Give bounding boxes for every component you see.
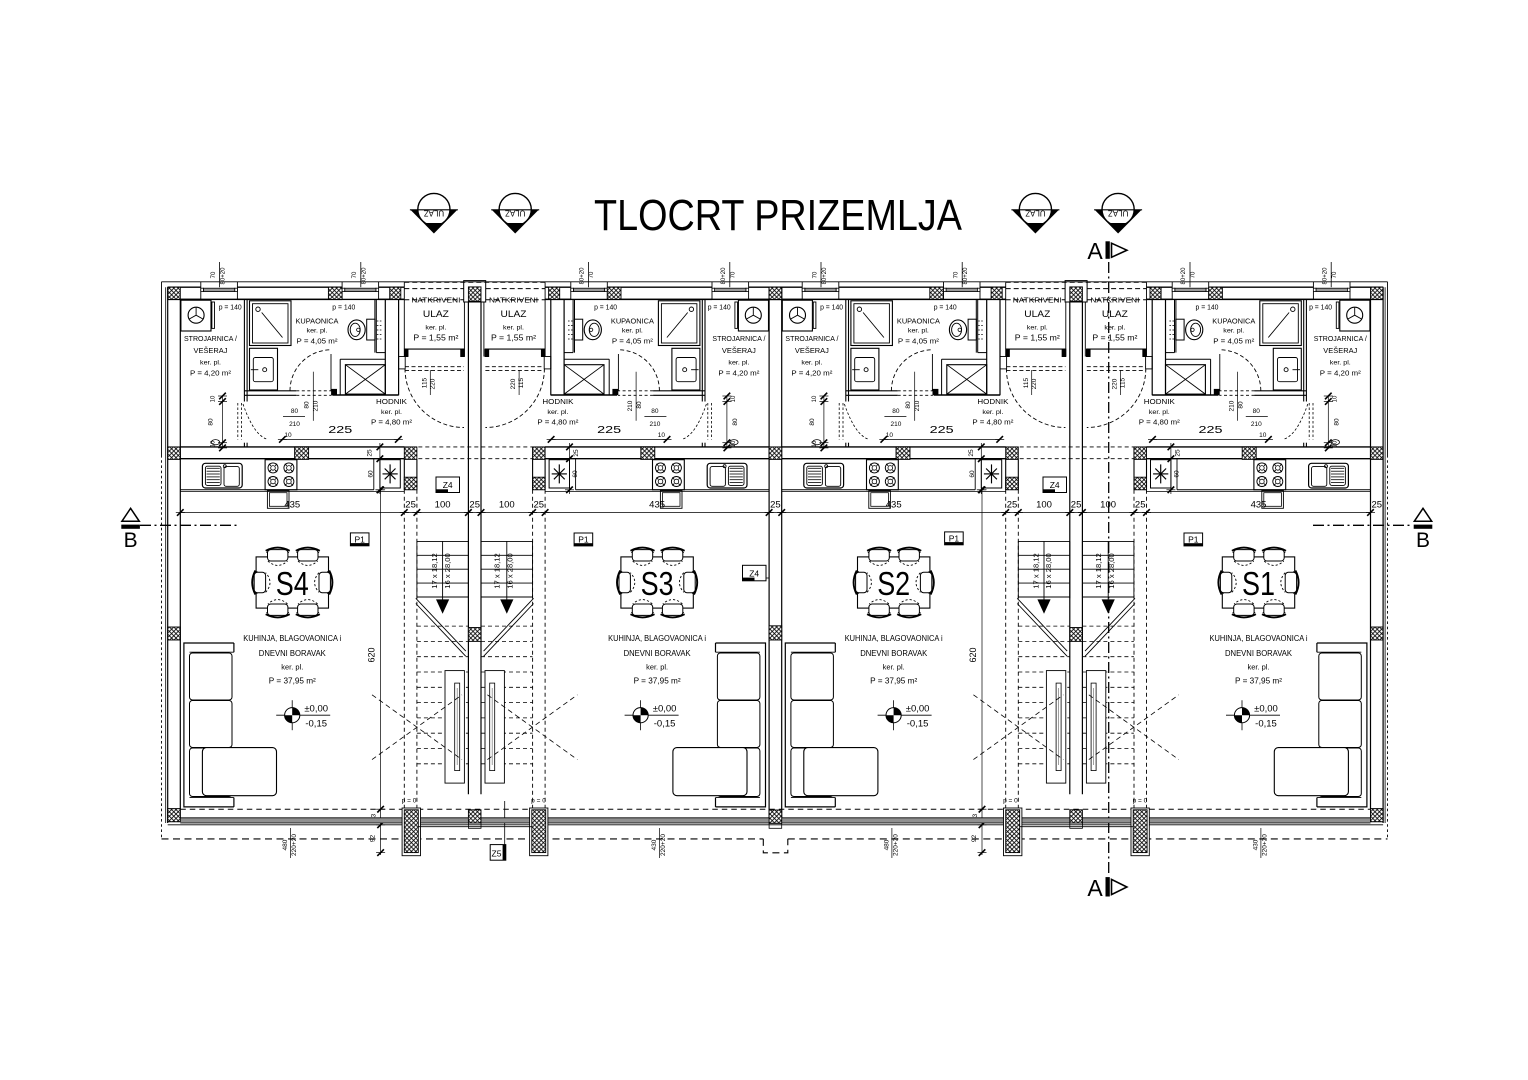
- svg-text:ker. pl.: ker. pl.: [503, 325, 524, 332]
- svg-text:P = 4,05 m²: P = 4,05 m²: [297, 337, 339, 346]
- svg-text:±0,00: ±0,00: [906, 704, 930, 715]
- svg-text:17 x 18,12: 17 x 18,12: [1031, 553, 1040, 588]
- svg-text:ker. pl.: ker. pl.: [381, 409, 402, 416]
- svg-text:80: 80: [1253, 408, 1261, 415]
- svg-text:100: 100: [435, 500, 451, 511]
- svg-text:25: 25: [405, 500, 416, 511]
- svg-text:P = 4,05 m²: P = 4,05 m²: [1213, 337, 1255, 346]
- svg-text:25: 25: [968, 449, 975, 457]
- svg-text:p = 140: p = 140: [708, 305, 731, 312]
- svg-text:A: A: [1087, 238, 1103, 264]
- svg-text:ker. pl.: ker. pl.: [801, 360, 822, 367]
- svg-text:220+20: 220+20: [1261, 834, 1268, 856]
- svg-text:25: 25: [770, 500, 781, 511]
- svg-text:80: 80: [732, 418, 739, 426]
- svg-text:P = 1,55 m²: P = 1,55 m²: [1092, 334, 1137, 343]
- svg-text:60: 60: [368, 470, 375, 478]
- svg-text:115: 115: [518, 377, 525, 388]
- svg-text:70: 70: [1191, 271, 1197, 278]
- svg-text:-0,15: -0,15: [1255, 719, 1277, 730]
- svg-text:ker. pl.: ker. pl.: [1027, 325, 1048, 332]
- svg-text:S1: S1: [1242, 565, 1275, 602]
- svg-text:25: 25: [367, 449, 374, 457]
- svg-text:80: 80: [1237, 401, 1244, 409]
- svg-text:B: B: [124, 529, 138, 552]
- svg-text:80+20: 80+20: [822, 267, 828, 285]
- svg-text:ker. pl.: ker. pl.: [425, 325, 446, 332]
- svg-text:10: 10: [812, 395, 818, 402]
- svg-text:ker. pl.: ker. pl.: [1149, 409, 1170, 416]
- svg-text:S3: S3: [641, 565, 674, 602]
- svg-text:100: 100: [499, 500, 515, 511]
- svg-text:p = 140: p = 140: [1196, 305, 1219, 312]
- svg-text:Z5: Z5: [492, 849, 502, 859]
- svg-text:210: 210: [649, 421, 660, 428]
- svg-text:210: 210: [627, 400, 634, 411]
- svg-text:16 x 28,00: 16 x 28,00: [505, 553, 514, 588]
- svg-text:P1: P1: [949, 533, 960, 543]
- svg-text:B: B: [1416, 529, 1430, 552]
- svg-text:KUHINJA, BLAGOVAONICA i: KUHINJA, BLAGOVAONICA i: [1210, 634, 1308, 643]
- svg-text:80: 80: [304, 401, 311, 409]
- svg-text:ker. pl.: ker. pl.: [728, 360, 749, 367]
- svg-text:P = 4,80 m²: P = 4,80 m²: [371, 418, 413, 427]
- svg-text:60: 60: [969, 470, 976, 478]
- svg-text:480: 480: [282, 839, 289, 850]
- svg-text:VEŠERAJ: VEŠERAJ: [722, 346, 756, 355]
- svg-text:STROJARNICA /: STROJARNICA /: [785, 334, 839, 343]
- svg-text:DNEVNI BORAVAK: DNEVNI BORAVAK: [1225, 649, 1293, 658]
- svg-text:VEŠERAJ: VEŠERAJ: [194, 346, 228, 355]
- svg-text:P1: P1: [578, 535, 589, 545]
- svg-text:220+20: 220+20: [660, 834, 667, 856]
- svg-text:ULAZ: ULAZ: [1102, 309, 1128, 320]
- svg-text:ker. pl.: ker. pl.: [1223, 328, 1244, 335]
- svg-text:p = 0: p = 0: [1003, 798, 1018, 805]
- svg-text:92: 92: [370, 835, 377, 843]
- svg-text:KUPAONICA: KUPAONICA: [897, 317, 940, 326]
- svg-text:HODNIK: HODNIK: [376, 397, 407, 406]
- svg-text:435: 435: [284, 500, 300, 511]
- svg-text:ker. pl.: ker. pl.: [547, 409, 568, 416]
- svg-text:80: 80: [892, 408, 900, 415]
- svg-text:Z4: Z4: [749, 568, 759, 578]
- svg-text:210: 210: [289, 421, 300, 428]
- svg-text:NATKRIVENI: NATKRIVENI: [1090, 296, 1139, 305]
- svg-text:STROJARNICA /: STROJARNICA /: [712, 334, 766, 343]
- svg-text:220: 220: [510, 378, 517, 389]
- svg-text:p = 0: p = 0: [1133, 798, 1148, 805]
- svg-text:115: 115: [1119, 377, 1126, 388]
- svg-text:ker. pl.: ker. pl.: [281, 665, 303, 672]
- svg-text:10: 10: [886, 432, 894, 439]
- svg-text:80+20: 80+20: [362, 267, 368, 285]
- svg-text:25: 25: [469, 500, 480, 511]
- svg-text:P = 1,55 m²: P = 1,55 m²: [413, 334, 458, 343]
- svg-text:p = 0: p = 0: [531, 798, 546, 805]
- svg-text:70: 70: [730, 271, 736, 278]
- svg-text:P = 4,80 m²: P = 4,80 m²: [972, 418, 1014, 427]
- svg-text:HODNIK: HODNIK: [1144, 397, 1175, 406]
- svg-text:225: 225: [597, 425, 622, 436]
- svg-text:-0,15: -0,15: [654, 719, 676, 730]
- svg-text:ker. pl.: ker. pl.: [307, 328, 328, 335]
- svg-text:Z4: Z4: [443, 480, 453, 490]
- svg-text:70: 70: [589, 271, 595, 278]
- svg-text:TLOCRT PRIZEMLJA: TLOCRT PRIZEMLJA: [594, 191, 963, 240]
- svg-text:-0,15: -0,15: [305, 719, 327, 730]
- svg-text:480: 480: [883, 839, 890, 850]
- svg-text:DNEVNI BORAVAK: DNEVNI BORAVAK: [624, 649, 692, 658]
- svg-text:25: 25: [1174, 449, 1181, 457]
- svg-text:115: 115: [1023, 377, 1030, 388]
- svg-text:80+20: 80+20: [1322, 267, 1328, 285]
- svg-text:P = 37,95 m²: P = 37,95 m²: [269, 677, 316, 686]
- svg-text:70: 70: [211, 271, 217, 278]
- svg-text:P = 4,20 m²: P = 4,20 m²: [1320, 369, 1362, 378]
- svg-text:DNEVNI BORAVAK: DNEVNI BORAVAK: [259, 649, 327, 658]
- svg-text:VEŠERAJ: VEŠERAJ: [1323, 346, 1357, 355]
- svg-text:±0,00: ±0,00: [304, 704, 328, 715]
- svg-text:17 x 18,12: 17 x 18,12: [1094, 553, 1103, 588]
- svg-text:ULAZ: ULAZ: [423, 309, 449, 320]
- svg-text:p = 140: p = 140: [934, 305, 957, 312]
- svg-text:115: 115: [422, 377, 429, 388]
- svg-text:S4: S4: [276, 565, 309, 602]
- svg-text:p = 140: p = 140: [1309, 305, 1332, 312]
- svg-text:60: 60: [1173, 470, 1180, 478]
- svg-text:10: 10: [1259, 432, 1267, 439]
- svg-text:10: 10: [731, 395, 737, 402]
- svg-text:P1: P1: [354, 534, 365, 544]
- svg-text:435: 435: [886, 500, 902, 511]
- svg-text:ker. pl.: ker. pl.: [883, 665, 905, 672]
- svg-text:60: 60: [572, 470, 579, 478]
- svg-text:P = 1,55 m²: P = 1,55 m²: [1015, 334, 1060, 343]
- svg-text:16 x 28,00: 16 x 28,00: [1044, 553, 1053, 588]
- svg-text:210: 210: [890, 421, 901, 428]
- svg-text:ker. pl.: ker. pl.: [200, 360, 221, 367]
- svg-text:HODNIK: HODNIK: [542, 397, 573, 406]
- svg-text:25: 25: [1071, 500, 1082, 511]
- svg-text:p = 140: p = 140: [332, 305, 355, 312]
- svg-text:p = 140: p = 140: [820, 305, 843, 312]
- svg-text:70: 70: [1332, 271, 1338, 278]
- svg-text:225: 225: [328, 425, 353, 436]
- svg-text:210: 210: [1251, 421, 1262, 428]
- svg-text:P = 4,20 m²: P = 4,20 m²: [791, 369, 833, 378]
- svg-text:80: 80: [809, 418, 816, 426]
- svg-text:ker. pl.: ker. pl.: [1248, 665, 1270, 672]
- svg-text:ULAZ: ULAZ: [1024, 309, 1050, 320]
- svg-text:P = 1,55 m²: P = 1,55 m²: [491, 334, 536, 343]
- svg-text:80+20: 80+20: [580, 267, 586, 285]
- svg-text:ker. pl.: ker. pl.: [646, 665, 668, 672]
- svg-text:80+20: 80+20: [1181, 267, 1187, 285]
- svg-text:25: 25: [1135, 500, 1146, 511]
- svg-text:435: 435: [649, 500, 665, 511]
- svg-text:ker. pl.: ker. pl.: [1104, 325, 1125, 332]
- svg-text:80: 80: [636, 401, 643, 409]
- svg-text:S2: S2: [877, 565, 910, 602]
- svg-text:220+20: 220+20: [291, 834, 298, 856]
- svg-text:STROJARNICA /: STROJARNICA /: [184, 334, 238, 343]
- svg-text:220: 220: [1111, 378, 1118, 389]
- svg-text:225: 225: [930, 425, 955, 436]
- svg-text:10: 10: [658, 432, 666, 439]
- svg-text:25: 25: [1007, 500, 1018, 511]
- svg-text:P = 37,95 m²: P = 37,95 m²: [634, 677, 681, 686]
- svg-text:STROJARNICA /: STROJARNICA /: [1314, 334, 1368, 343]
- svg-text:70: 70: [352, 271, 358, 278]
- svg-text:ker. pl.: ker. pl.: [1330, 360, 1351, 367]
- svg-text:100: 100: [1100, 500, 1116, 511]
- svg-text:25: 25: [573, 449, 580, 457]
- svg-text:220+20: 220+20: [892, 834, 899, 856]
- svg-text:P = 4,80 m²: P = 4,80 m²: [537, 418, 579, 427]
- svg-text:ker. pl.: ker. pl.: [908, 328, 929, 335]
- svg-text:10: 10: [211, 395, 217, 402]
- svg-text:p = 0: p = 0: [402, 798, 417, 805]
- svg-text:HODNIK: HODNIK: [977, 397, 1008, 406]
- svg-text:80+20: 80+20: [963, 267, 969, 285]
- svg-text:P = 4,80 m²: P = 4,80 m²: [1139, 418, 1181, 427]
- svg-text:p = 140: p = 140: [219, 305, 242, 312]
- svg-text:10: 10: [1332, 440, 1338, 447]
- svg-text:220: 220: [430, 378, 437, 389]
- svg-text:25: 25: [1372, 500, 1383, 511]
- svg-text:10: 10: [284, 432, 292, 439]
- svg-text:70: 70: [954, 271, 960, 278]
- svg-text:25: 25: [534, 500, 545, 511]
- svg-text:80: 80: [208, 418, 215, 426]
- svg-text:±0,00: ±0,00: [1254, 704, 1278, 715]
- svg-text:17 x 18,12: 17 x 18,12: [430, 553, 439, 588]
- svg-text:80: 80: [291, 408, 299, 415]
- svg-text:210: 210: [1228, 400, 1235, 411]
- svg-text:P = 37,95 m²: P = 37,95 m²: [1235, 677, 1282, 686]
- svg-text:ULAZ: ULAZ: [1108, 209, 1129, 218]
- svg-text:10: 10: [731, 440, 737, 447]
- svg-text:17 x 18,12: 17 x 18,12: [493, 553, 502, 588]
- svg-text:225: 225: [1199, 425, 1224, 436]
- svg-text:210: 210: [914, 400, 921, 411]
- svg-text:P1: P1: [1188, 535, 1199, 545]
- svg-text:430: 430: [1252, 839, 1259, 850]
- svg-text:KUPAONICA: KUPAONICA: [1212, 317, 1255, 326]
- svg-text:ULAZ: ULAZ: [505, 209, 526, 218]
- svg-text:VEŠERAJ: VEŠERAJ: [795, 346, 829, 355]
- svg-text:P = 4,20 m²: P = 4,20 m²: [190, 369, 232, 378]
- svg-text:NATKRIVENI: NATKRIVENI: [1013, 296, 1062, 305]
- svg-text:P = 4,20 m²: P = 4,20 m²: [718, 369, 760, 378]
- svg-text:NATKRIVENI: NATKRIVENI: [411, 296, 460, 305]
- svg-text:92: 92: [971, 835, 978, 843]
- svg-text:80+20: 80+20: [721, 267, 727, 285]
- svg-text:P = 37,95 m²: P = 37,95 m²: [870, 677, 917, 686]
- svg-text:ULAZ: ULAZ: [1025, 209, 1046, 218]
- svg-text:KUPAONICA: KUPAONICA: [611, 317, 654, 326]
- svg-text:±0,00: ±0,00: [653, 704, 677, 715]
- svg-text:-0,15: -0,15: [907, 719, 929, 730]
- svg-text:NATKRIVENI: NATKRIVENI: [489, 296, 538, 305]
- svg-text:KUHINJA, BLAGOVAONICA i: KUHINJA, BLAGOVAONICA i: [243, 634, 341, 643]
- svg-text:A: A: [1087, 875, 1103, 901]
- svg-text:80: 80: [1333, 418, 1340, 426]
- svg-text:620: 620: [367, 647, 377, 662]
- svg-text:16 x 28,00: 16 x 28,00: [443, 553, 452, 588]
- svg-text:210: 210: [313, 400, 320, 411]
- svg-text:KUHINJA, BLAGOVAONICA i: KUHINJA, BLAGOVAONICA i: [845, 634, 943, 643]
- svg-text:ULAZ: ULAZ: [424, 209, 445, 218]
- svg-text:ULAZ: ULAZ: [501, 309, 527, 320]
- svg-text:220: 220: [1031, 378, 1038, 389]
- svg-text:16 x 28,00: 16 x 28,00: [1107, 553, 1116, 588]
- svg-text:p = 140: p = 140: [594, 305, 617, 312]
- svg-text:P = 4,05 m²: P = 4,05 m²: [612, 337, 654, 346]
- svg-text:70: 70: [812, 271, 818, 278]
- svg-text:Z4: Z4: [1050, 480, 1060, 490]
- svg-text:P = 4,05 m²: P = 4,05 m²: [898, 337, 940, 346]
- svg-text:10: 10: [1332, 395, 1338, 402]
- svg-text:430: 430: [651, 839, 658, 850]
- svg-text:DNEVNI BORAVAK: DNEVNI BORAVAK: [860, 649, 928, 658]
- svg-text:ker. pl.: ker. pl.: [982, 409, 1003, 416]
- svg-text:435: 435: [1251, 500, 1267, 511]
- svg-text:ker. pl.: ker. pl.: [622, 328, 643, 335]
- svg-text:KUPAONICA: KUPAONICA: [296, 317, 339, 326]
- svg-text:80: 80: [651, 408, 659, 415]
- svg-text:80+20: 80+20: [221, 267, 227, 285]
- svg-text:100: 100: [1036, 500, 1052, 511]
- svg-text:620: 620: [968, 647, 978, 662]
- svg-text:KUHINJA, BLAGOVAONICA i: KUHINJA, BLAGOVAONICA i: [608, 634, 706, 643]
- svg-text:80: 80: [905, 401, 912, 409]
